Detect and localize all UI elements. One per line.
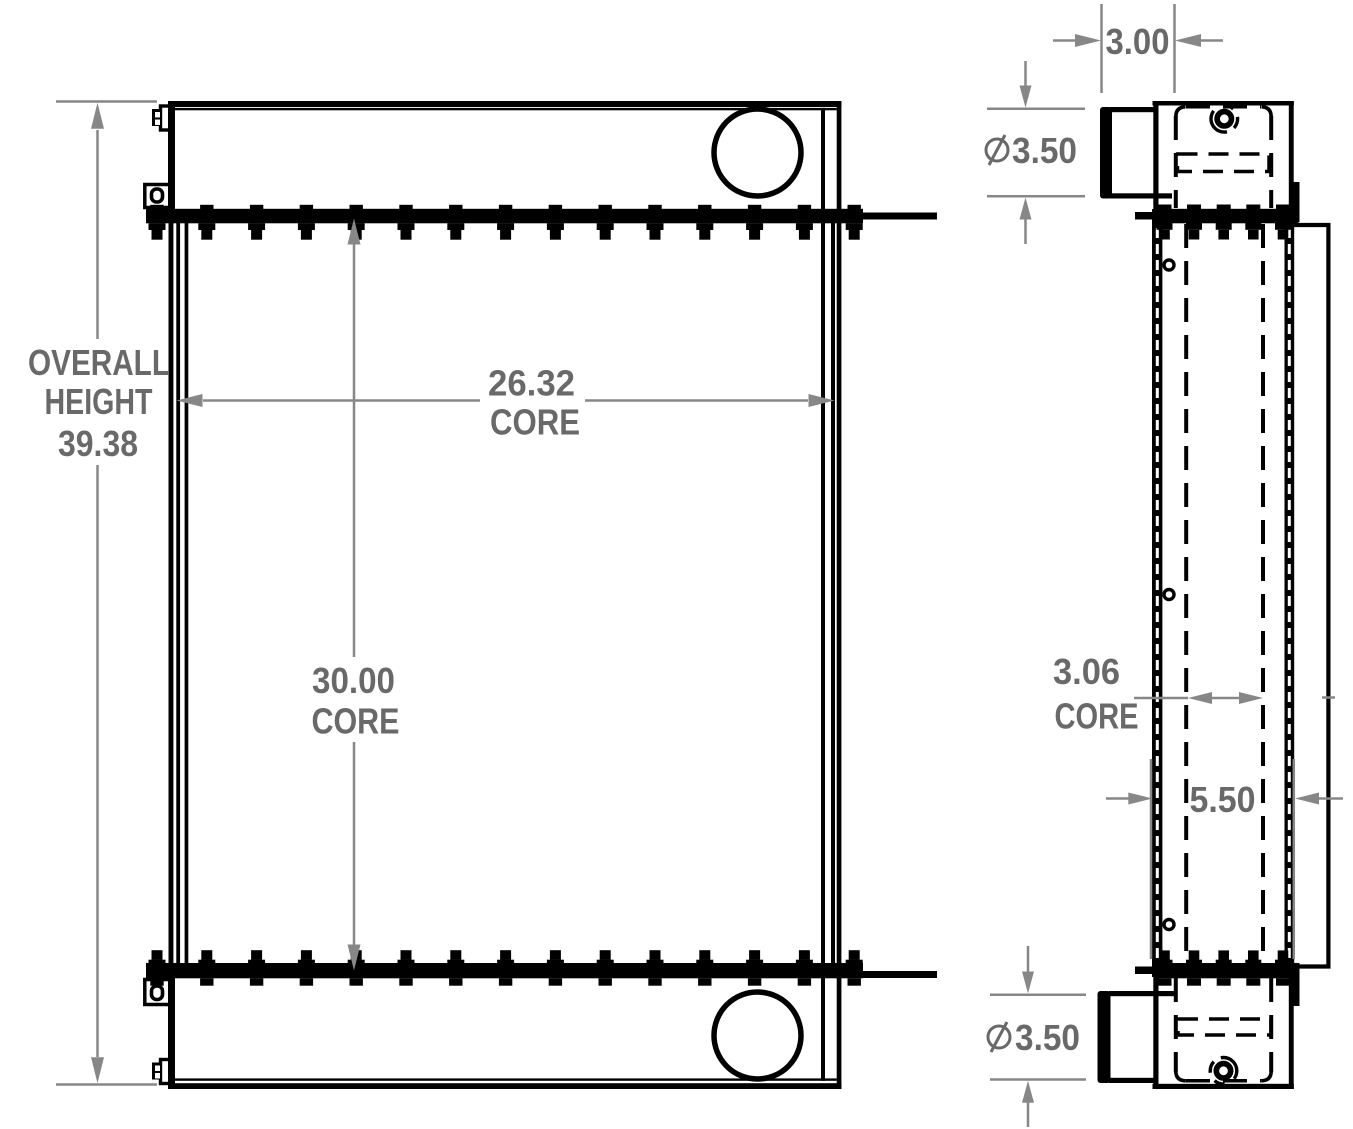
svg-text:CORE: CORE [1055, 696, 1139, 737]
svg-text:3.00: 3.00 [1106, 21, 1170, 62]
svg-text:3.06: 3.06 [1053, 651, 1120, 692]
svg-text:CORE: CORE [312, 701, 400, 742]
svg-text:3.50: 3.50 [1015, 1017, 1080, 1058]
svg-text:39.38: 39.38 [58, 423, 138, 464]
svg-text:OVERALL: OVERALL [28, 342, 170, 383]
svg-text:3.50: 3.50 [1012, 130, 1077, 171]
svg-text:CORE: CORE [490, 402, 580, 443]
svg-text:30.00: 30.00 [312, 660, 395, 701]
svg-text:HEIGHT: HEIGHT [45, 381, 153, 422]
svg-text:5.50: 5.50 [1190, 779, 1256, 820]
svg-text:26.32: 26.32 [488, 363, 575, 404]
